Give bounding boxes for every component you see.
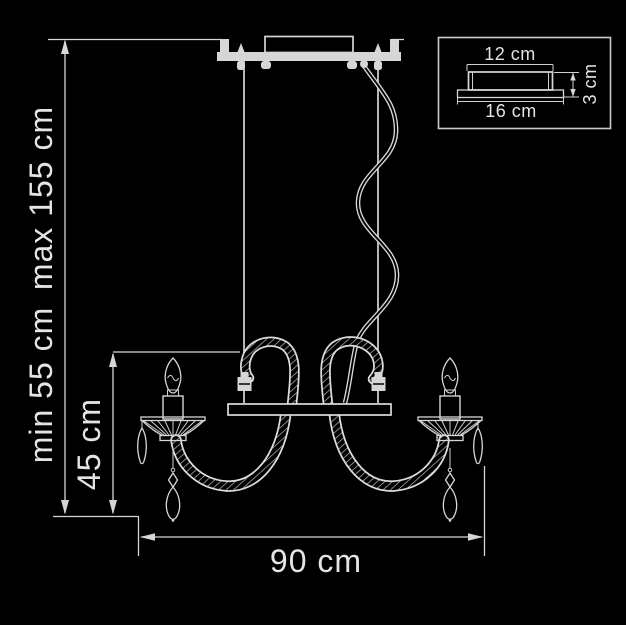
dimension-label-width: 90 cm	[270, 543, 362, 579]
left-canopy-knob	[261, 61, 271, 69]
suspension-cables	[244, 60, 378, 403]
right-canopy-knob	[347, 61, 357, 69]
dimension-body-height: 45 cm	[71, 352, 240, 515]
arrow-up-icon	[109, 353, 117, 368]
diagram-canvas: max 155 cm min 55 cm 45 cm 90 cm 12 cm 1…	[0, 0, 626, 625]
dimension-label-max-height: max 155 cm	[23, 106, 59, 290]
arrow-right-icon	[468, 533, 483, 541]
inset-label-top-width: 12 cm	[484, 44, 536, 64]
right-bulb	[442, 358, 458, 393]
left-center-drop	[166, 487, 179, 519]
arrow-up-icon	[61, 40, 69, 55]
right-center-drop	[443, 487, 456, 519]
chandelier-dimension-diagram: max 155 cm min 55 cm 45 cm 90 cm 12 cm 1…	[0, 0, 626, 625]
right-center-drop-bead	[448, 468, 452, 472]
left-bracket	[220, 39, 229, 53]
inset-label-height: 3 cm	[580, 63, 600, 104]
arrow-down-icon	[61, 500, 69, 515]
canopy-box	[265, 37, 353, 53]
right-bracket	[390, 39, 399, 53]
ceiling-mount	[217, 37, 401, 71]
dimension-width: 90 cm	[139, 466, 485, 579]
left-bobeche-fan	[144, 421, 202, 435]
dimension-label-min-height: min 55 cm	[23, 307, 59, 464]
right-candle	[418, 358, 482, 441]
arrow-down-icon	[109, 500, 117, 515]
left-outer-drop	[138, 428, 147, 464]
dimension-label-body-height: 45 cm	[71, 398, 107, 490]
left-candle	[141, 358, 205, 441]
right-bobeche-fan	[421, 421, 479, 435]
canopy-detail-inset: 12 cm 16 cm 3 cm	[439, 38, 611, 129]
left-bulb	[165, 358, 181, 393]
right-clamp-stem	[374, 61, 382, 70]
right-center-drop-diamond	[446, 473, 455, 487]
right-bulb-filament	[445, 375, 456, 380]
left-candle-sleeve	[163, 396, 183, 419]
right-candle-sleeve	[440, 396, 460, 419]
left-bulb-filament	[168, 375, 179, 380]
center-bar	[228, 404, 391, 415]
left-center-drop-bead	[171, 468, 175, 472]
right-arm	[334, 412, 444, 486]
left-center-drop-diamond	[169, 473, 178, 487]
arrow-left-icon	[140, 533, 155, 541]
cable-fittings	[238, 372, 386, 391]
left-clamp-stem	[237, 61, 245, 70]
left-scroll	[245, 342, 294, 405]
right-outer-drop	[474, 428, 483, 464]
inset-label-base-width: 16 cm	[485, 101, 537, 121]
cord-grommet	[360, 60, 368, 68]
